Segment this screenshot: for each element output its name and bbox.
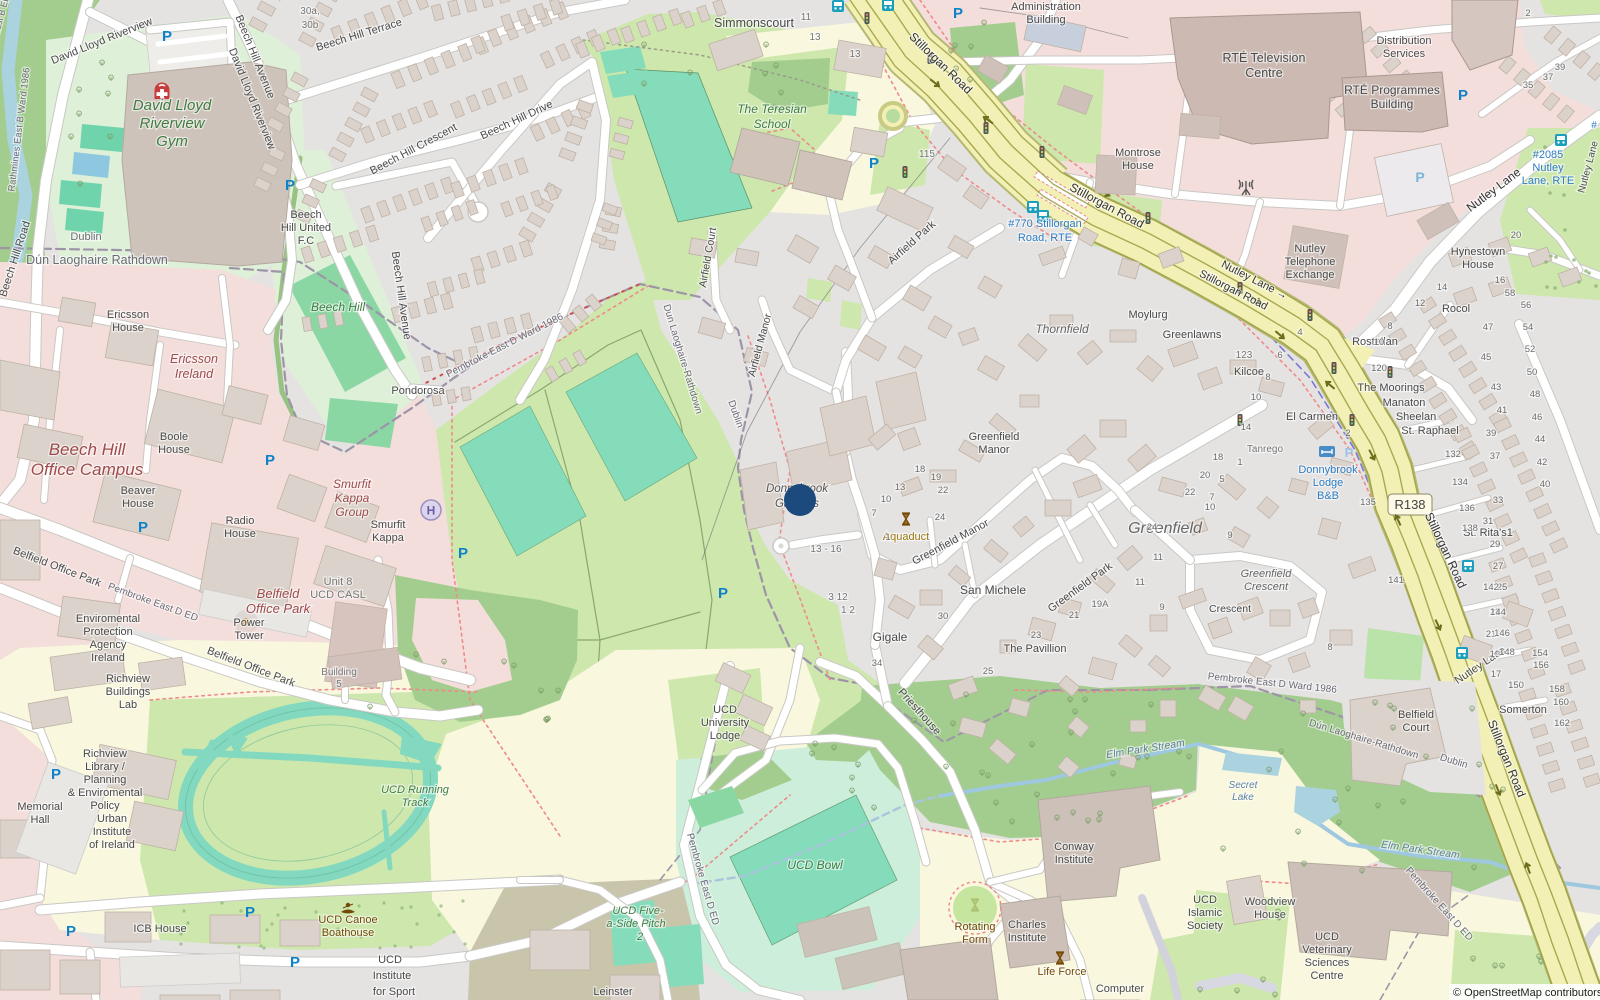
svg-text:Road, RTE: Road, RTE bbox=[1018, 232, 1072, 244]
svg-text:Society: Society bbox=[1187, 920, 1224, 932]
svg-text:1 2: 1 2 bbox=[841, 605, 855, 616]
svg-text:31: 31 bbox=[1483, 516, 1494, 527]
svg-text:42: 42 bbox=[1537, 457, 1548, 468]
svg-text:Sciences: Sciences bbox=[1305, 957, 1350, 969]
svg-text:46: 46 bbox=[1532, 412, 1543, 423]
svg-text:P: P bbox=[66, 923, 76, 940]
svg-text:Riverview: Riverview bbox=[139, 115, 205, 132]
svg-text:Track: Track bbox=[402, 797, 429, 809]
svg-text:Building: Building bbox=[1026, 14, 1065, 26]
svg-text:56: 56 bbox=[1521, 300, 1532, 311]
svg-text:Greenfield: Greenfield bbox=[969, 431, 1020, 443]
svg-text:Islamic: Islamic bbox=[1188, 907, 1223, 919]
svg-text:1: 1 bbox=[885, 532, 890, 543]
svg-text:8: 8 bbox=[1327, 642, 1332, 653]
svg-text:Woodview: Woodview bbox=[1245, 896, 1296, 908]
svg-text:UCD Running: UCD Running bbox=[381, 784, 450, 796]
svg-text:39: 39 bbox=[1486, 428, 1497, 439]
svg-text:P: P bbox=[265, 452, 275, 469]
svg-text:11: 11 bbox=[1135, 577, 1145, 588]
svg-text:115: 115 bbox=[919, 149, 935, 160]
svg-text:Life Force: Life Force bbox=[1038, 966, 1087, 978]
svg-text:San Michele: San Michele bbox=[960, 583, 1026, 597]
svg-text:Moylurg: Moylurg bbox=[1128, 309, 1167, 321]
svg-text:6: 6 bbox=[1277, 350, 1282, 361]
svg-text:P: P bbox=[51, 766, 61, 783]
svg-text:for Sport: for Sport bbox=[373, 986, 415, 998]
svg-text:Secret: Secret bbox=[1229, 780, 1259, 791]
svg-text:13: 13 bbox=[809, 32, 821, 43]
svg-text:22: 22 bbox=[938, 485, 949, 496]
svg-text:UCD Bowl: UCD Bowl bbox=[787, 858, 843, 872]
svg-text:UCD: UCD bbox=[1193, 894, 1217, 906]
svg-text:20: 20 bbox=[1200, 470, 1211, 481]
svg-text:10: 10 bbox=[1251, 392, 1262, 403]
svg-text:158: 158 bbox=[1549, 684, 1565, 695]
svg-text:22: 22 bbox=[1185, 487, 1196, 498]
svg-text:Centre: Centre bbox=[1245, 66, 1283, 80]
svg-text:Smurfit: Smurfit bbox=[371, 519, 406, 531]
svg-text:Tower: Tower bbox=[234, 630, 264, 642]
svg-text:24: 24 bbox=[1147, 522, 1158, 533]
svg-text:Conway: Conway bbox=[1054, 841, 1094, 853]
svg-text:Ireland: Ireland bbox=[175, 367, 214, 381]
svg-text:18: 18 bbox=[1213, 452, 1224, 463]
svg-text:Belfield: Belfield bbox=[1398, 709, 1434, 721]
svg-text:144: 144 bbox=[1490, 607, 1506, 618]
svg-text:23: 23 bbox=[1031, 630, 1042, 641]
svg-text:Lake: Lake bbox=[1232, 792, 1254, 803]
svg-text:5: 5 bbox=[336, 679, 342, 690]
svg-text:House: House bbox=[112, 322, 144, 334]
svg-text:F.C: F.C bbox=[298, 235, 315, 247]
svg-text:35: 35 bbox=[1523, 80, 1534, 91]
svg-text:RTÉ Television: RTÉ Television bbox=[1223, 50, 1306, 65]
svg-text:House: House bbox=[1462, 259, 1494, 271]
svg-text:30: 30 bbox=[938, 611, 949, 622]
svg-text:The Pavillion: The Pavillion bbox=[1004, 643, 1067, 655]
svg-text:Institute: Institute bbox=[1055, 854, 1094, 866]
svg-text:16: 16 bbox=[1495, 275, 1506, 286]
svg-text:12: 12 bbox=[1415, 298, 1426, 309]
svg-text:30b: 30b bbox=[302, 20, 319, 31]
svg-text:54: 54 bbox=[1523, 322, 1534, 333]
svg-text:58: 58 bbox=[1505, 288, 1516, 299]
svg-text:Hynestown: Hynestown bbox=[1451, 246, 1505, 258]
svg-text:Tanrego: Tanrego bbox=[1247, 444, 1284, 455]
svg-text:48: 48 bbox=[1530, 389, 1541, 400]
svg-text:UCD Canoe: UCD Canoe bbox=[318, 914, 377, 926]
svg-text:13: 13 bbox=[895, 482, 906, 493]
svg-text:Hall: Hall bbox=[31, 814, 50, 826]
svg-text:UCD: UCD bbox=[713, 704, 737, 716]
svg-text:21: 21 bbox=[1069, 610, 1080, 621]
svg-text:Protection: Protection bbox=[83, 626, 133, 638]
svg-text:162: 162 bbox=[1554, 718, 1570, 729]
svg-text:Power: Power bbox=[233, 617, 265, 629]
svg-text:P: P bbox=[245, 904, 255, 921]
svg-text:Crescent: Crescent bbox=[1244, 581, 1289, 593]
svg-text:Kappa: Kappa bbox=[372, 532, 405, 544]
svg-text:Court: Court bbox=[1403, 722, 1430, 734]
svg-text:Office Park: Office Park bbox=[246, 601, 312, 616]
svg-text:El Carmen: El Carmen bbox=[1286, 411, 1338, 423]
svg-text:House: House bbox=[122, 498, 154, 510]
svg-text:P: P bbox=[162, 28, 172, 45]
svg-text:20: 20 bbox=[1511, 230, 1522, 241]
svg-text:Kilcoe: Kilcoe bbox=[1234, 366, 1264, 378]
svg-text:#: # bbox=[1591, 120, 1597, 131]
svg-text:Boathouse: Boathouse bbox=[322, 927, 375, 939]
svg-text:18: 18 bbox=[915, 464, 926, 475]
svg-text:Dublin: Dublin bbox=[70, 231, 101, 243]
svg-text:52: 52 bbox=[1525, 344, 1536, 355]
svg-text:Richview: Richview bbox=[83, 748, 127, 760]
svg-text:9: 9 bbox=[1227, 530, 1232, 541]
svg-text:10: 10 bbox=[881, 494, 892, 505]
svg-text:13 - 16: 13 - 16 bbox=[810, 544, 842, 555]
svg-text:Buildings: Buildings bbox=[106, 686, 151, 698]
svg-text:7: 7 bbox=[1209, 492, 1214, 503]
svg-text:44: 44 bbox=[1535, 434, 1546, 445]
svg-text:Manaton: Manaton bbox=[1383, 397, 1426, 409]
svg-text:141: 141 bbox=[1388, 575, 1404, 586]
svg-text:Radio: Radio bbox=[226, 515, 255, 527]
svg-text:Greenlawns: Greenlawns bbox=[1163, 329, 1222, 341]
svg-text:ICB House: ICB House bbox=[133, 923, 186, 935]
svg-text:Beech Hill: Beech Hill bbox=[49, 440, 127, 459]
svg-text:8: 8 bbox=[1387, 321, 1392, 332]
svg-text:Rotating: Rotating bbox=[955, 921, 996, 933]
svg-text:34: 34 bbox=[872, 658, 883, 669]
svg-text:of Ireland: of Ireland bbox=[89, 839, 135, 851]
svg-text:Policy: Policy bbox=[90, 800, 120, 812]
svg-text:Smurfit: Smurfit bbox=[333, 477, 372, 491]
svg-text:138: 138 bbox=[1462, 523, 1478, 534]
svg-text:11: 11 bbox=[1153, 552, 1163, 563]
svg-text:Ericsson: Ericsson bbox=[170, 352, 218, 366]
svg-text:Crescent: Crescent bbox=[1209, 603, 1251, 615]
svg-text:135: 135 bbox=[1360, 497, 1376, 508]
svg-text:Institute: Institute bbox=[1008, 932, 1047, 944]
svg-text:The Moorings: The Moorings bbox=[1357, 382, 1425, 394]
svg-text:27: 27 bbox=[1493, 561, 1504, 572]
svg-text:Distribution: Distribution bbox=[1376, 35, 1431, 47]
svg-text:P: P bbox=[458, 545, 468, 562]
svg-text:10: 10 bbox=[1205, 502, 1216, 513]
svg-text:Institute: Institute bbox=[373, 970, 412, 982]
svg-text:120: 120 bbox=[1371, 363, 1387, 374]
svg-text:Montrose: Montrose bbox=[1115, 147, 1161, 159]
svg-text:Thornfield: Thornfield bbox=[1035, 322, 1089, 336]
svg-text:123: 123 bbox=[1236, 350, 1253, 361]
svg-text:136: 136 bbox=[1459, 503, 1475, 514]
svg-text:19: 19 bbox=[931, 472, 942, 483]
svg-text:Gigale: Gigale bbox=[873, 630, 908, 644]
svg-text:Sheelan: Sheelan bbox=[1396, 411, 1436, 423]
svg-text:148: 148 bbox=[1499, 647, 1515, 658]
svg-text:#770 Stillorgan: #770 Stillorgan bbox=[1008, 218, 1081, 230]
svg-text:Belfield: Belfield bbox=[257, 586, 300, 601]
svg-text:Telephone: Telephone bbox=[1285, 256, 1336, 268]
svg-text:Building: Building bbox=[1371, 97, 1414, 111]
svg-text:Building: Building bbox=[321, 667, 357, 678]
svg-text:University: University bbox=[701, 717, 750, 729]
svg-text:David Lloyd: David Lloyd bbox=[133, 97, 212, 114]
svg-text:14: 14 bbox=[1437, 282, 1448, 293]
svg-text:© OpenStreetMap contributors: © OpenStreetMap contributors bbox=[1453, 987, 1600, 999]
svg-text:Lane, RTE: Lane, RTE bbox=[1522, 175, 1574, 187]
svg-text:Manor: Manor bbox=[978, 444, 1010, 456]
svg-text:8: 8 bbox=[1265, 372, 1270, 383]
svg-text:P: P bbox=[1345, 445, 1354, 460]
svg-text:40: 40 bbox=[1540, 479, 1551, 490]
svg-text:a-Side Pitch: a-Side Pitch bbox=[606, 918, 665, 930]
svg-text:13: 13 bbox=[849, 49, 861, 60]
svg-text:4: 4 bbox=[1297, 327, 1302, 338]
svg-text:Nutley: Nutley bbox=[1532, 162, 1564, 174]
svg-text:Unit 8: Unit 8 bbox=[324, 576, 353, 588]
svg-text:Beech Hill: Beech Hill bbox=[311, 300, 365, 314]
svg-text:Richview: Richview bbox=[106, 673, 150, 685]
svg-text:House: House bbox=[1122, 160, 1154, 172]
svg-text:Leinster: Leinster bbox=[593, 986, 632, 998]
svg-text:P: P bbox=[869, 155, 879, 172]
svg-text:Veterinary: Veterinary bbox=[1302, 944, 1352, 956]
svg-text:Donnybrook: Donnybrook bbox=[1298, 464, 1358, 476]
svg-text:150: 150 bbox=[1508, 680, 1524, 691]
svg-text:Exchange: Exchange bbox=[1286, 269, 1335, 281]
svg-text:Agency: Agency bbox=[90, 639, 127, 651]
svg-text:Lodge: Lodge bbox=[710, 730, 741, 742]
svg-text:UCD: UCD bbox=[378, 954, 402, 966]
svg-text:43: 43 bbox=[1491, 382, 1502, 393]
svg-text:2: 2 bbox=[1345, 428, 1350, 439]
svg-text:Services: Services bbox=[1383, 48, 1426, 60]
svg-text:2: 2 bbox=[1525, 8, 1530, 19]
svg-text:142: 142 bbox=[1483, 582, 1499, 593]
svg-text:Hill United: Hill United bbox=[281, 222, 331, 234]
svg-text:39: 39 bbox=[1555, 62, 1566, 73]
svg-text:10: 10 bbox=[1374, 337, 1385, 348]
svg-text:Somerton: Somerton bbox=[1499, 704, 1547, 716]
svg-text:P: P bbox=[953, 5, 963, 22]
svg-text:Charles: Charles bbox=[1008, 919, 1046, 931]
svg-text:45: 45 bbox=[1481, 352, 1492, 363]
svg-text:Library /: Library / bbox=[85, 761, 126, 773]
svg-text:#2085: #2085 bbox=[1533, 149, 1564, 161]
svg-text:P: P bbox=[1458, 87, 1468, 104]
svg-text:1: 1 bbox=[1237, 457, 1242, 468]
svg-text:160: 160 bbox=[1553, 697, 1569, 708]
svg-text:UCD Five-: UCD Five- bbox=[612, 905, 664, 917]
svg-text:Computer: Computer bbox=[1096, 983, 1145, 995]
svg-text:Greenfield: Greenfield bbox=[1241, 568, 1293, 580]
svg-text:Enviromental: Enviromental bbox=[76, 613, 140, 625]
svg-text:House: House bbox=[224, 528, 256, 540]
svg-text:Beaver: Beaver bbox=[121, 485, 156, 497]
svg-text:Group: Group bbox=[335, 505, 369, 519]
svg-text:19A: 19A bbox=[1092, 599, 1110, 610]
svg-text:Rocol: Rocol bbox=[1442, 303, 1470, 315]
svg-text:Greenfield: Greenfield bbox=[1128, 520, 1203, 537]
svg-text:Ireland: Ireland bbox=[91, 652, 125, 664]
svg-text:Beech: Beech bbox=[290, 209, 321, 221]
svg-text:Boole: Boole bbox=[160, 431, 188, 443]
svg-text:Lab: Lab bbox=[119, 699, 137, 711]
svg-text:2: 2 bbox=[636, 931, 643, 943]
svg-text:30a,: 30a, bbox=[300, 6, 319, 17]
svg-text:29: 29 bbox=[1490, 539, 1501, 550]
svg-text:Simmonscourt: Simmonscourt bbox=[714, 16, 794, 30]
svg-text:132: 132 bbox=[1445, 449, 1461, 460]
svg-text:Centre: Centre bbox=[1310, 970, 1343, 982]
svg-text:Gym: Gym bbox=[156, 133, 188, 150]
svg-text:UCD CASL: UCD CASL bbox=[310, 589, 366, 601]
svg-text:St. Raphael: St. Raphael bbox=[1401, 425, 1458, 437]
svg-text:14: 14 bbox=[1241, 422, 1252, 433]
svg-text:25: 25 bbox=[983, 666, 994, 677]
svg-text:Administration: Administration bbox=[1011, 1, 1081, 13]
svg-text:Ericsson: Ericsson bbox=[107, 309, 149, 321]
svg-text:UCD: UCD bbox=[1315, 931, 1339, 943]
svg-text:33: 33 bbox=[1493, 495, 1504, 506]
svg-text:RTÉ Programmes: RTÉ Programmes bbox=[1344, 82, 1440, 97]
svg-text:P: P bbox=[285, 177, 295, 194]
svg-text:47: 47 bbox=[1483, 322, 1494, 333]
svg-text:156: 156 bbox=[1533, 660, 1549, 671]
svg-text:Office Campus: Office Campus bbox=[31, 460, 144, 479]
svg-text:H: H bbox=[427, 504, 436, 518]
svg-text:P: P bbox=[718, 585, 728, 602]
svg-text:7: 7 bbox=[871, 508, 876, 519]
svg-text:Urban: Urban bbox=[97, 813, 127, 825]
svg-text:37: 37 bbox=[1490, 451, 1501, 462]
svg-text:House: House bbox=[1254, 909, 1286, 921]
svg-text:R138: R138 bbox=[1394, 497, 1425, 512]
svg-text:37: 37 bbox=[1543, 72, 1554, 83]
svg-text:154: 154 bbox=[1532, 648, 1548, 659]
svg-text:B&B: B&B bbox=[1317, 490, 1339, 502]
svg-text:11: 11 bbox=[801, 12, 812, 23]
svg-text:3 12: 3 12 bbox=[828, 592, 848, 603]
svg-text:& Enviromental: & Enviromental bbox=[68, 787, 143, 799]
svg-text:9: 9 bbox=[1159, 602, 1164, 613]
svg-text:P: P bbox=[138, 519, 148, 536]
svg-text:Kappa: Kappa bbox=[335, 491, 370, 505]
svg-text:Form: Form bbox=[962, 934, 988, 946]
svg-text:134: 134 bbox=[1452, 477, 1468, 488]
svg-text:17: 17 bbox=[1491, 669, 1502, 680]
svg-text:Nutley: Nutley bbox=[1294, 243, 1326, 255]
svg-text:24: 24 bbox=[935, 512, 946, 523]
svg-text:5: 5 bbox=[1219, 474, 1224, 485]
svg-text:Lodge: Lodge bbox=[1313, 477, 1344, 489]
svg-text:50: 50 bbox=[1527, 367, 1538, 378]
svg-text:Memorial: Memorial bbox=[17, 801, 62, 813]
svg-text:School: School bbox=[754, 117, 791, 131]
svg-text:P: P bbox=[1415, 169, 1424, 185]
svg-text:Pondorosa: Pondorosa bbox=[391, 385, 445, 397]
svg-text:The Teresian: The Teresian bbox=[737, 102, 807, 116]
svg-text:146: 146 bbox=[1494, 628, 1510, 639]
svg-text:Planning: Planning bbox=[84, 774, 127, 786]
svg-text:Institute: Institute bbox=[93, 826, 132, 838]
svg-text:Dún Laoghaire Rathdown: Dún Laoghaire Rathdown bbox=[26, 253, 168, 267]
svg-text:House: House bbox=[158, 444, 190, 456]
svg-text:P: P bbox=[290, 954, 300, 971]
svg-text:41: 41 bbox=[1497, 405, 1508, 416]
